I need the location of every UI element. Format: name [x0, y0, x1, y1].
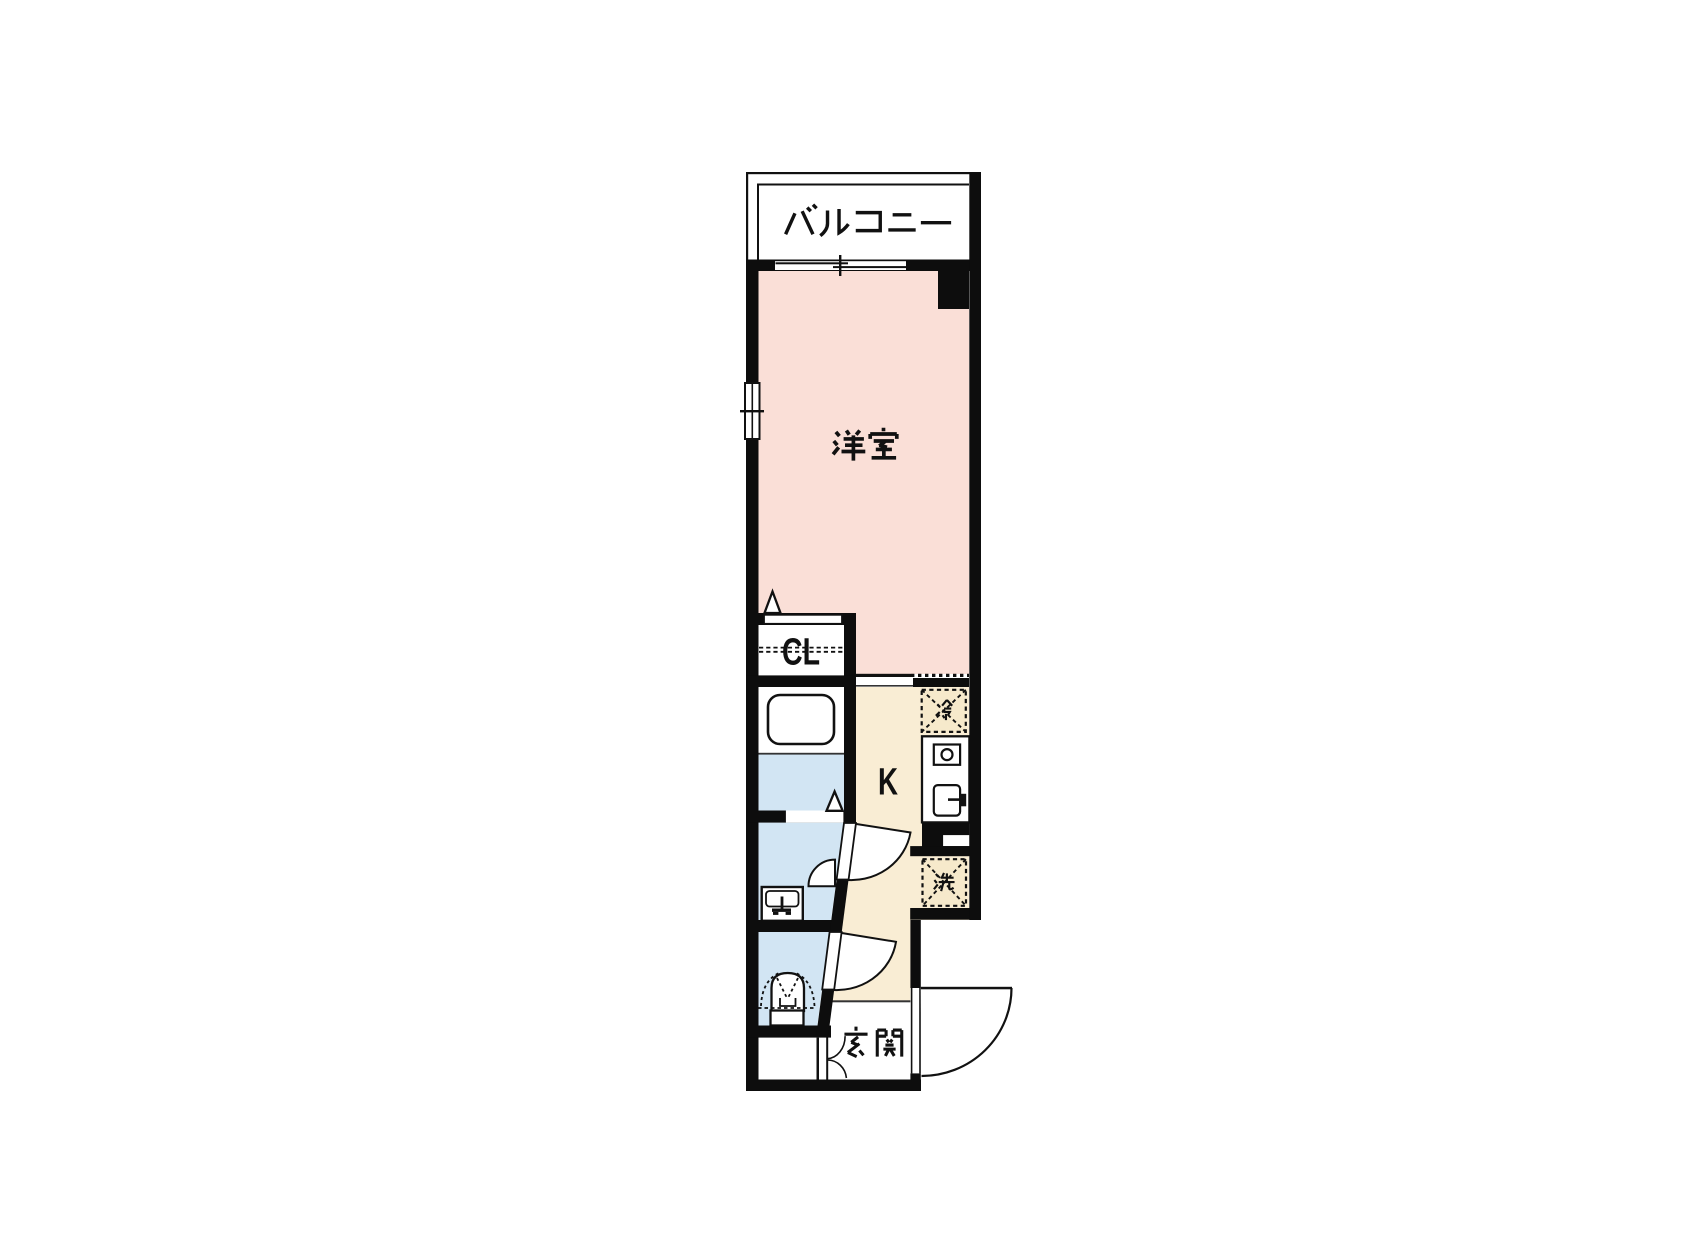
- svg-text:K: K: [878, 762, 898, 804]
- svg-text:CL: CL: [782, 632, 820, 674]
